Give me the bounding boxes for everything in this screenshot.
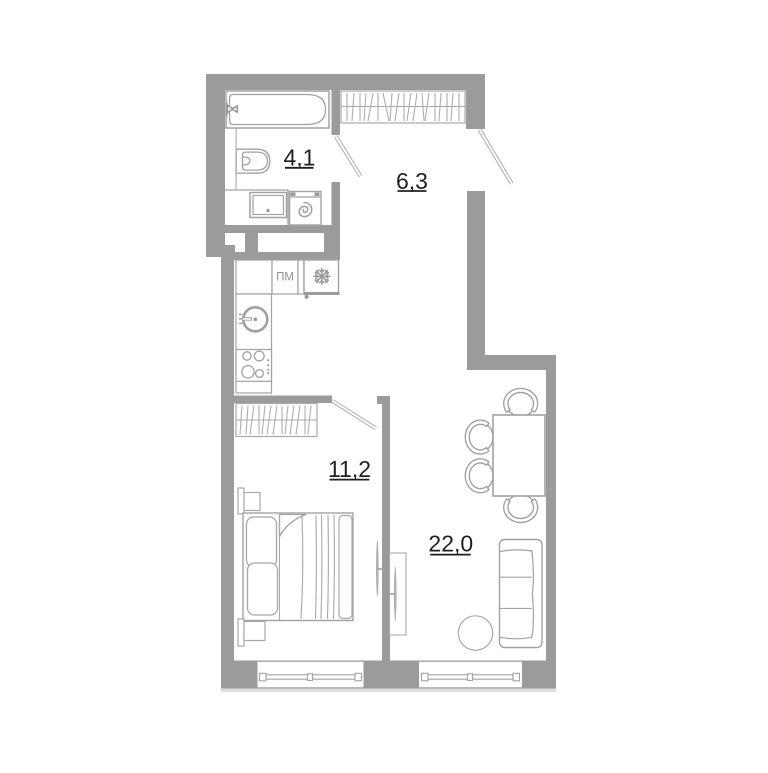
svg-text:22,0: 22,0 bbox=[428, 531, 473, 557]
svg-text:4,1: 4,1 bbox=[284, 145, 316, 171]
svg-text:11,2: 11,2 bbox=[328, 456, 371, 482]
svg-text:ПМ: ПМ bbox=[276, 272, 294, 284]
